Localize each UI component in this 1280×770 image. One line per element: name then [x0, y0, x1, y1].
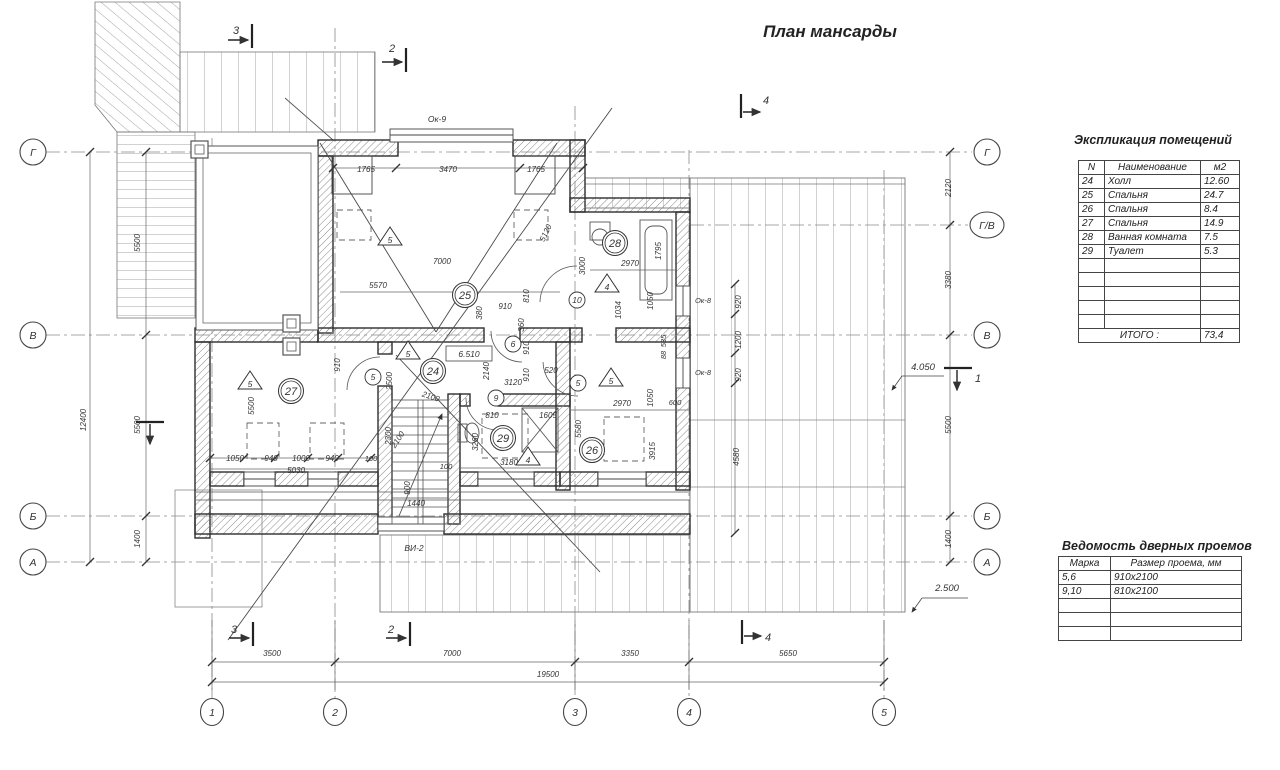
table-cell: Туалет — [1105, 245, 1201, 259]
table-cell: 25 — [1079, 189, 1105, 203]
dim-label: 910 — [522, 368, 531, 382]
dim-label: 5500 — [944, 416, 953, 434]
dim-label: 900 — [403, 481, 412, 495]
svg-text:26: 26 — [585, 445, 599, 457]
room-number: 29 — [491, 426, 516, 451]
dim-label: Ок-8 — [695, 296, 712, 305]
table-cell: 24 — [1079, 175, 1105, 189]
door-mark: 9 — [488, 390, 504, 406]
dim-label: 3915 — [648, 442, 657, 460]
column-header: N — [1079, 161, 1105, 175]
door-triangle: 5 — [599, 368, 623, 386]
dim-label: 940 — [264, 454, 278, 463]
blueprint-page: План мансарды — [0, 0, 1280, 770]
svg-text:5: 5 — [881, 707, 887, 719]
door-triangle: 4 — [595, 274, 619, 292]
axis-circle: Г — [20, 139, 46, 165]
svg-text:В: В — [29, 330, 36, 342]
roof-left-strip — [117, 132, 195, 318]
room-number: 26 — [580, 438, 605, 463]
table-cell: Холл — [1105, 175, 1201, 189]
dim-label: 1795 — [654, 242, 663, 260]
table-row — [1079, 273, 1240, 287]
table-cell: 24.7 — [1201, 189, 1240, 203]
dim-label: 1034 — [614, 301, 623, 319]
table-row — [1059, 599, 1242, 613]
svg-text:5: 5 — [388, 235, 393, 245]
rooms-table-title: Экспликация помещений — [1074, 133, 1232, 147]
table-cell — [1201, 259, 1240, 273]
door-mark: 6 — [505, 336, 521, 352]
dim-label: 3260 — [471, 433, 480, 451]
dim-label: 910 — [498, 302, 512, 311]
dim-label: 5120 — [538, 222, 554, 242]
dim-label: 1200 — [734, 331, 743, 349]
table-row: 5,6910х2100 — [1059, 571, 1242, 585]
door-mark: 5 — [365, 369, 381, 385]
dim-label: 1 — [975, 373, 981, 385]
window-ok9 — [390, 129, 513, 142]
svg-text:29: 29 — [496, 433, 509, 445]
dim-label: Ок-9 — [428, 114, 446, 124]
axis-circle: Г/В — [970, 212, 1004, 238]
dim-label: 2 — [387, 624, 394, 636]
svg-text:5: 5 — [371, 372, 376, 382]
table-cell: 29 — [1079, 245, 1105, 259]
table-cell: ИТОГО : — [1079, 329, 1201, 343]
table-cell: 14.9 — [1201, 217, 1240, 231]
table-cell: 7.5 — [1201, 231, 1240, 245]
table-cell — [1111, 599, 1242, 613]
dim-label: 920 — [734, 368, 743, 382]
dim-label: 3180 — [500, 458, 518, 467]
dim-label: 4 — [763, 95, 769, 107]
svg-text:6: 6 — [511, 339, 516, 349]
dim-label: 5580 — [574, 420, 583, 438]
svg-text:24: 24 — [426, 366, 439, 378]
roof-bottom-left-box — [175, 490, 262, 607]
svg-text:4: 4 — [686, 707, 692, 719]
dim-label: 3350 — [621, 649, 639, 658]
table-cell: 9,10 — [1059, 585, 1111, 599]
door-triangle: 5 — [378, 227, 402, 245]
table-cell — [1079, 287, 1105, 301]
table-cell — [1105, 315, 1201, 329]
door-triangle: 5 — [396, 341, 420, 359]
table-row — [1059, 627, 1242, 641]
svg-text:5: 5 — [406, 349, 411, 359]
table-cell — [1201, 315, 1240, 329]
dim-label: 2 — [388, 43, 395, 55]
axis-circle: 3 — [564, 699, 587, 726]
column-header: м2 — [1201, 161, 1240, 175]
dim-label: 5500 — [133, 416, 142, 434]
axis-circle: 4 — [678, 699, 701, 726]
doors-table-title: Ведомость дверных проемов — [1062, 539, 1252, 553]
dim-label: 2120 — [944, 179, 953, 198]
dim-label: 810 — [522, 289, 531, 303]
dim-label: 100 — [365, 454, 378, 463]
table-cell: Спальня — [1105, 189, 1201, 203]
dim-label: 535 — [659, 334, 668, 347]
table-cell: 27 — [1079, 217, 1105, 231]
dim-label: 380 — [475, 306, 484, 320]
axis-circle: 1 — [201, 699, 224, 726]
axis-circle: Б — [974, 503, 1000, 529]
table-cell — [1059, 599, 1111, 613]
svg-text:4: 4 — [605, 282, 610, 292]
column-header: Марка — [1059, 557, 1111, 571]
dim-label: 1000 — [292, 454, 310, 463]
floor-plan-drawing: 32432414.0502.5006.510Ок-9Ок-8Ок-8ВИ-255… — [0, 0, 1280, 770]
svg-text:В: В — [983, 330, 990, 342]
svg-text:25: 25 — [458, 290, 472, 302]
svg-text:Б: Б — [984, 511, 991, 523]
dim-label: 12400 — [79, 408, 88, 431]
dim-label: 7000 — [433, 257, 451, 266]
table-cell — [1105, 259, 1201, 273]
door-mark: 5 — [570, 375, 586, 391]
dim-label: 920 — [734, 295, 743, 309]
table-cell: 26 — [1079, 203, 1105, 217]
table-cell: 12.60 — [1201, 175, 1240, 189]
room-number: 24 — [421, 359, 446, 384]
table-row: 24Холл12.60 — [1079, 175, 1240, 189]
table-cell: 5.3 — [1201, 245, 1240, 259]
room-number: 27 — [279, 379, 304, 404]
axis-circle: А — [20, 549, 46, 575]
rooms-table-header: NНаименованием2 — [1079, 161, 1240, 175]
axis-circle: В — [20, 322, 46, 348]
axis-circle: Б — [20, 503, 46, 529]
dim-label: 5570 — [369, 281, 387, 290]
svg-text:Б: Б — [30, 511, 37, 523]
svg-text:3: 3 — [572, 707, 578, 719]
roof-top-left-hip — [95, 2, 180, 132]
column-header: Наименование — [1105, 161, 1201, 175]
table-cell — [1079, 273, 1105, 287]
dim-label: 1400 — [133, 530, 142, 548]
dim-label: 4.050 — [911, 362, 935, 373]
dim-label: 940 — [325, 454, 339, 463]
dim-label: ВИ-2 — [404, 543, 424, 553]
svg-text:10: 10 — [572, 295, 582, 305]
dim-label: 1440 — [407, 499, 425, 508]
table-cell: 73,4 — [1201, 329, 1240, 343]
table-cell — [1079, 315, 1105, 329]
dim-label: 4580 — [732, 448, 741, 466]
table-cell — [1105, 287, 1201, 301]
table-cell — [1111, 627, 1242, 641]
table-cell: Спальня — [1105, 203, 1201, 217]
svg-text:5: 5 — [248, 379, 253, 389]
dim-label: 5500 — [133, 234, 142, 252]
axis-circle: В — [974, 322, 1000, 348]
table-row — [1059, 613, 1242, 627]
dim-label: 19500 — [537, 670, 560, 679]
dim-label: 3380 — [944, 271, 953, 289]
table-cell — [1059, 627, 1111, 641]
table-cell: Ванная комната — [1105, 231, 1201, 245]
axis-circle: 2 — [324, 699, 347, 726]
table-cell: 910х2100 — [1111, 571, 1242, 585]
dim-label: 910 — [522, 341, 531, 355]
svg-text:27: 27 — [284, 386, 298, 398]
table-cell — [1201, 273, 1240, 287]
table-cell: Спальня — [1105, 217, 1201, 231]
dim-label: 3 — [233, 25, 240, 37]
room-number: 25 — [453, 283, 478, 308]
dim-label: 810 — [485, 411, 499, 420]
rooms-explication-table: NНаименованием2 24Холл12.6025Спальня24.7… — [1078, 160, 1240, 343]
dim-label: 2500 — [385, 372, 394, 391]
table-row — [1079, 259, 1240, 273]
dim-label: 1765 — [527, 165, 545, 174]
column-header: Размер проема, мм — [1111, 557, 1242, 571]
dim-label: 600 — [669, 398, 682, 407]
door-triangle: 5 — [238, 371, 262, 389]
dim-label: 910 — [333, 358, 342, 372]
svg-text:4: 4 — [526, 455, 531, 465]
door-triangle: 4 — [516, 447, 540, 465]
doors-table-header: МаркаРазмер проема, мм — [1059, 557, 1242, 571]
room-number: 28 — [603, 231, 628, 256]
dim-label: 5650 — [779, 649, 797, 658]
svg-text:2: 2 — [331, 707, 338, 719]
dim-label: 1765 — [357, 165, 375, 174]
dim-label: 2300 — [384, 427, 393, 446]
svg-text:28: 28 — [608, 238, 622, 250]
dim-label: 5500 — [247, 397, 256, 415]
roof-top-strip — [180, 52, 375, 132]
table-cell — [1201, 287, 1240, 301]
dim-label: 1050 — [646, 389, 655, 407]
table-row: 26Спальня8.4 — [1079, 203, 1240, 217]
table-row — [1079, 301, 1240, 315]
axis-circle: Г — [974, 139, 1000, 165]
dim-label: 2970 — [612, 399, 631, 408]
table-cell — [1059, 613, 1111, 627]
dim-label: 5030 — [287, 466, 305, 475]
dim-label: 3000 — [578, 257, 587, 275]
table-row — [1079, 315, 1240, 329]
svg-text:А: А — [982, 557, 990, 569]
dim-label: 100 — [440, 462, 453, 471]
svg-text:1: 1 — [209, 707, 215, 719]
table-cell: 5,6 — [1059, 571, 1111, 585]
svg-text:9: 9 — [494, 393, 499, 403]
axis-circle: А — [974, 549, 1000, 575]
table-cell — [1105, 273, 1201, 287]
dim-label: 1605 — [539, 411, 557, 420]
dim-label: 1050 — [646, 292, 655, 310]
axis-circle: 5 — [873, 699, 896, 726]
table-row — [1079, 287, 1240, 301]
table-row: 27Спальня14.9 — [1079, 217, 1240, 231]
dim-label: 6.510 — [458, 349, 480, 359]
table-cell — [1079, 259, 1105, 273]
roof-right — [690, 178, 905, 612]
dim-label: 2.500 — [934, 583, 959, 594]
dim-label: 2970 — [620, 259, 639, 268]
table-row: 29Туалет5.3 — [1079, 245, 1240, 259]
dim-label: 3470 — [439, 165, 457, 174]
dim-label: 3500 — [263, 649, 281, 658]
dim-label: 3120 — [504, 378, 522, 387]
svg-text:А: А — [28, 557, 36, 569]
dim-label: 88 — [659, 350, 668, 359]
dim-label: 360 — [517, 318, 526, 332]
dim-label: 3 — [231, 624, 238, 636]
table-cell — [1079, 301, 1105, 315]
table-cell: 8.4 — [1201, 203, 1240, 217]
table-row: 9,10810х2100 — [1059, 585, 1242, 599]
dim-label: 1400 — [944, 530, 953, 548]
dim-label: 4 — [765, 632, 771, 644]
table-cell — [1105, 301, 1201, 315]
dim-label: 7000 — [443, 649, 461, 658]
svg-text:Г/В: Г/В — [979, 220, 995, 232]
table-row: 25Спальня24.7 — [1079, 189, 1240, 203]
svg-text:5: 5 — [576, 378, 581, 388]
table-cell — [1111, 613, 1242, 627]
table-cell — [1201, 301, 1240, 315]
dim-label: 1050 — [226, 454, 244, 463]
table-row: 28Ванная комната7.5 — [1079, 231, 1240, 245]
dim-label: 520 — [544, 366, 558, 375]
svg-text:5: 5 — [609, 376, 614, 386]
door-mark: 10 — [569, 292, 585, 308]
roof-bottom — [380, 535, 690, 612]
table-cell: 28 — [1079, 231, 1105, 245]
door-openings-table: МаркаРазмер проема, мм 5,6910х21009,1081… — [1058, 556, 1242, 641]
table-row: ИТОГО :73,4 — [1079, 329, 1240, 343]
dim-label: Ок-8 — [695, 368, 712, 377]
table-cell: 810х2100 — [1111, 585, 1242, 599]
dim-label: 2140 — [482, 362, 491, 381]
